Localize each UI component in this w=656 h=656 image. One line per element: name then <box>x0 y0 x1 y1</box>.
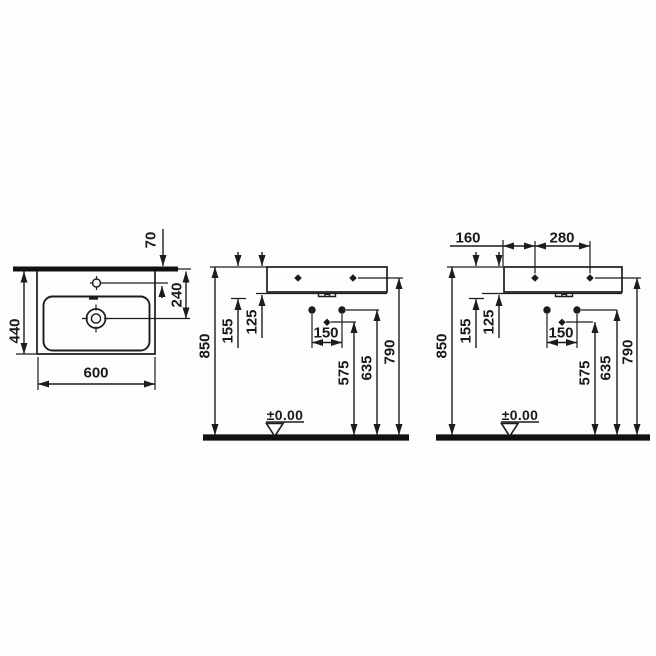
fixing-hole-left <box>308 306 315 313</box>
deck-hole-left <box>294 274 302 282</box>
tap-hole-symbol <box>90 276 103 290</box>
dim-label-635: 635 <box>359 355 376 380</box>
basin-side-outline <box>504 267 622 292</box>
front-elevation-view: 850 155 125 150 575 635 790 ±0.00 <box>197 252 410 438</box>
side-elevation-view: 160 280 850 155 125 150 575 635 790 ±0.0… <box>434 230 651 438</box>
basin-front-outline <box>267 267 387 292</box>
washbasin-dimension-drawing: 70 440 240 600 850 155 125 150 <box>0 0 656 656</box>
dim-label-240: 240 <box>169 282 186 307</box>
datum-label: ±0.00 <box>267 407 303 423</box>
dim-label-635: 635 <box>598 355 615 380</box>
dim-label-150: 150 <box>548 325 573 342</box>
datum-triangle <box>267 424 284 437</box>
dim-label-850: 850 <box>434 333 451 358</box>
top-dim-extension-lines <box>503 240 590 274</box>
dim-label-155: 155 <box>220 318 237 343</box>
dim-label-600: 600 <box>83 365 108 382</box>
dim-label-575: 575 <box>577 360 594 385</box>
dim-label-790: 790 <box>620 339 637 364</box>
technical-drawing-page: 70 440 240 600 850 155 125 150 <box>0 0 656 656</box>
fixing-hole-left <box>543 306 550 313</box>
dim-label-125: 125 <box>481 309 498 334</box>
dim-label-790: 790 <box>382 339 399 364</box>
overflow-slot <box>89 296 98 300</box>
dim-label-160: 160 <box>455 230 480 247</box>
dim-label-575: 575 <box>336 360 353 385</box>
dim-label-150: 150 <box>313 325 338 342</box>
dim-label-70: 70 <box>143 232 160 249</box>
dim-label-280: 280 <box>549 230 574 247</box>
deck-hole-right <box>586 274 594 282</box>
drain-symbol <box>82 305 110 333</box>
dim-label-440: 440 <box>7 318 24 343</box>
plan-view: 70 440 240 600 <box>7 229 192 390</box>
fixing-hole-right <box>573 306 580 313</box>
datum-triangle <box>502 424 519 437</box>
datum-label: ±0.00 <box>502 407 538 423</box>
deck-hole-right <box>349 274 357 282</box>
dim-label-155: 155 <box>458 318 475 343</box>
dim-label-125: 125 <box>244 309 261 334</box>
dim-label-850: 850 <box>197 333 214 358</box>
fixing-hole-right <box>338 306 345 313</box>
front-extension-lines <box>210 267 387 299</box>
deck-hole-left <box>531 274 539 282</box>
